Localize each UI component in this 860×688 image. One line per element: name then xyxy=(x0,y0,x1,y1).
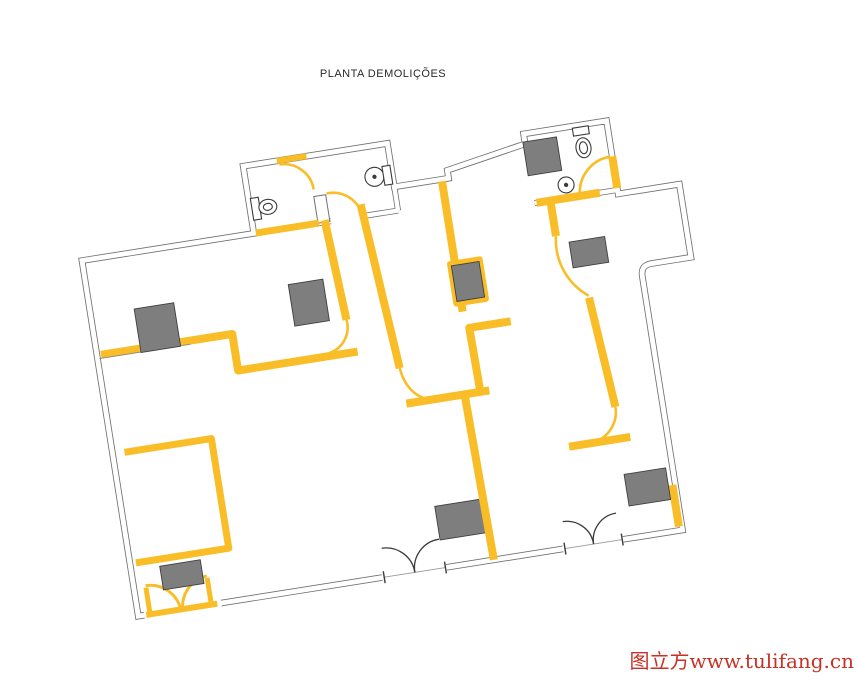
floor-plan-canvas: PLANTA DEMOLIÇÕES 图立方www.tulifang.cn xyxy=(0,0,860,688)
sheet-background xyxy=(0,0,860,688)
column-block-midright xyxy=(569,237,609,268)
column-block-center xyxy=(451,261,484,301)
column-block-wc-right xyxy=(523,137,562,176)
toilet-icon xyxy=(572,126,589,136)
demo-wall-wc-right-stub xyxy=(550,201,556,237)
washbasin-drain-icon xyxy=(564,183,568,187)
column-block-midleft xyxy=(288,279,329,326)
drawing-sheet: PLANTA DEMOLIÇÕES 图立方www.tulifang.cn xyxy=(0,0,860,688)
page-title: PLANTA DEMOLIÇÕES xyxy=(320,67,446,80)
watermark: 图立方www.tulifang.cn xyxy=(629,649,854,673)
washbasin-drain-icon xyxy=(373,175,377,179)
demo-overlay-wc-right-wall xyxy=(612,156,617,188)
column-block-bottom-right xyxy=(624,468,670,506)
column-block-left xyxy=(134,303,180,353)
